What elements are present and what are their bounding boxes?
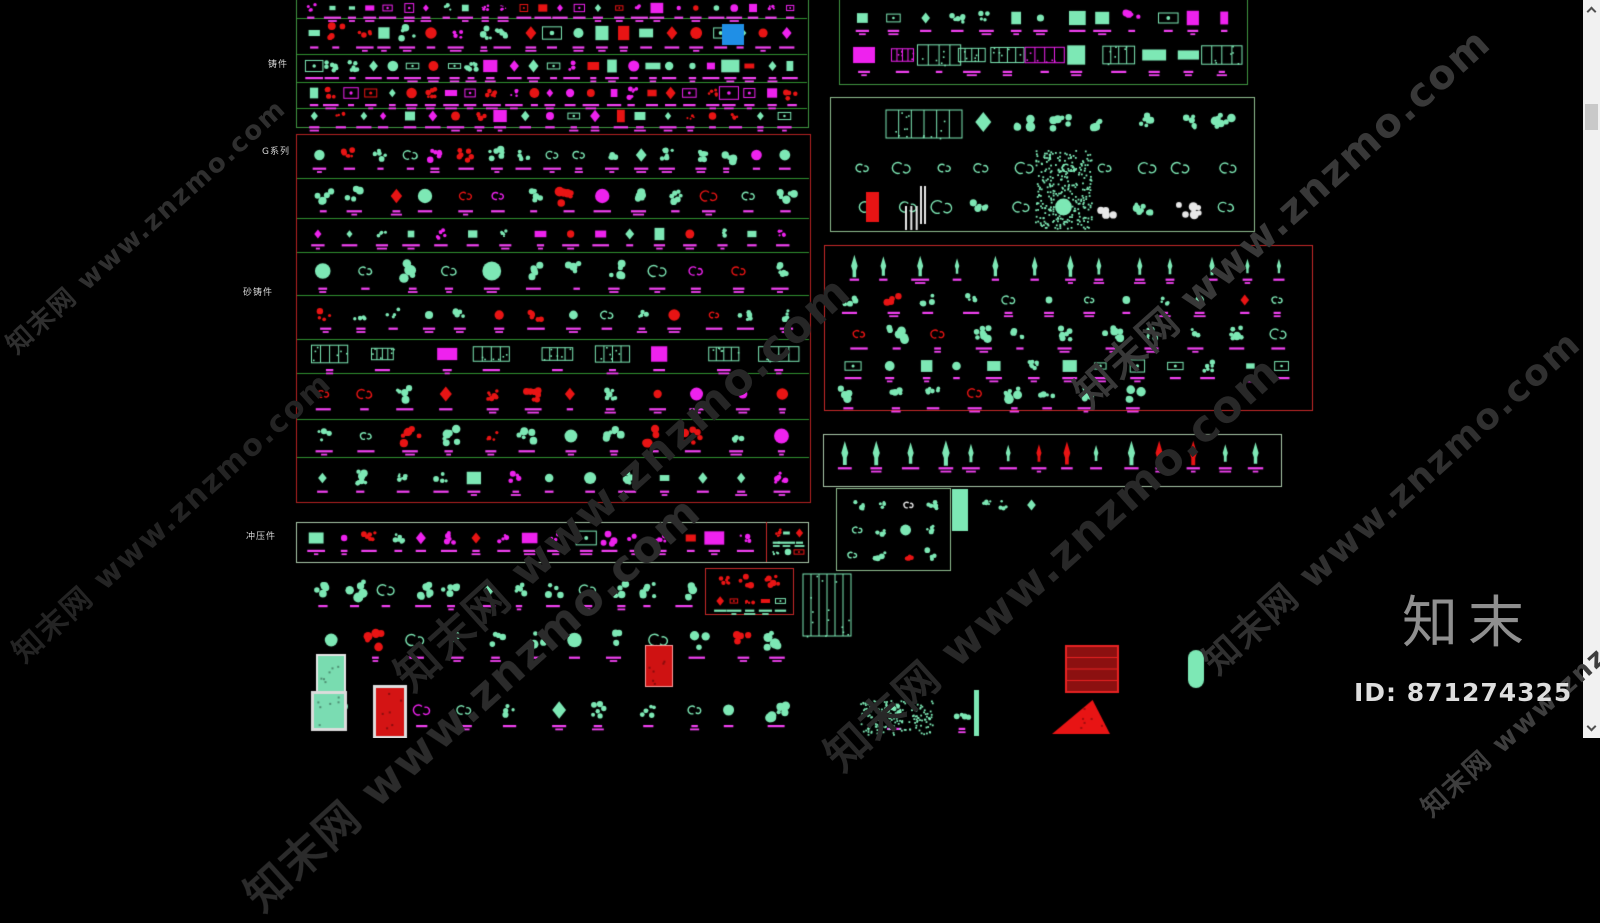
scroll-down-icon[interactable]: [1587, 722, 1597, 732]
category-label: 砂铸件: [243, 289, 273, 298]
category-label: 铸件: [268, 61, 288, 70]
category-label: 冲压件: [246, 533, 276, 542]
cad-drawing-canvas[interactable]: [0, 0, 1600, 738]
scroll-up-icon[interactable]: [1587, 7, 1597, 17]
resource-id-text: ID: 871274325: [1354, 680, 1572, 705]
cad-viewport: 铸件G系列砂铸件冲压件 知末网 www.znzmo.com知末网 www.znz…: [0, 0, 1600, 738]
scrollbar-thumb[interactable]: [1585, 104, 1598, 130]
category-label: G系列: [262, 148, 290, 157]
znzmo-logo: 知末: [1402, 596, 1534, 652]
vertical-scrollbar[interactable]: [1583, 0, 1600, 738]
